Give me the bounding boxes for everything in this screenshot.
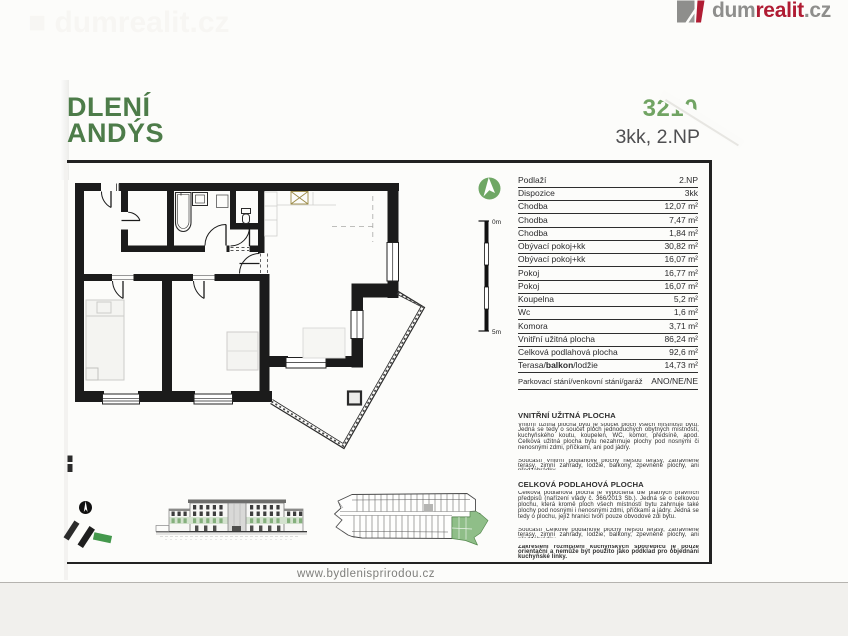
svg-text:0m: 0m (492, 219, 501, 226)
svg-text:5m: 5m (492, 329, 501, 336)
